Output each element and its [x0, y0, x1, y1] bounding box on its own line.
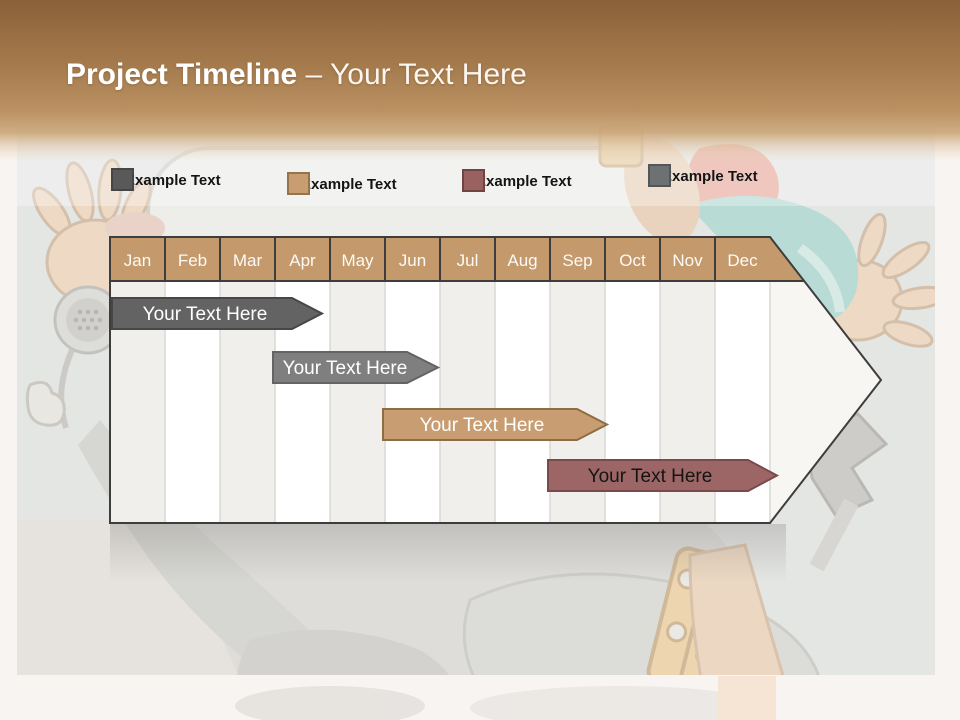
slide-canvas: Project Timeline – Your Text Here Exampl… [0, 0, 960, 720]
month-label-jun[interactable]: Jun [399, 251, 426, 270]
month-label-nov[interactable]: Nov [672, 251, 703, 270]
legend-swatch-3 [462, 169, 485, 192]
legend-swatch-rect [649, 165, 670, 186]
month-label-feb[interactable]: Feb [178, 251, 207, 270]
month-header-row: Jan Feb Mar Apr May Jun Jul Aug Sep Oct … [110, 237, 804, 281]
bar-label-1[interactable]: Your Text Here [143, 304, 268, 325]
legend-swatch-rect [288, 173, 309, 194]
column-stripe-jun [385, 281, 440, 523]
month-label-apr[interactable]: Apr [289, 251, 316, 270]
slide-title[interactable]: Project Timeline – Your Text Here [66, 58, 527, 92]
legend-swatch-1 [111, 168, 134, 191]
legend-swatch-rect [463, 170, 484, 191]
timeline-bar-4[interactable]: Your Text Here [548, 460, 777, 491]
timeline-bar-2[interactable]: Your Text Here [273, 352, 438, 383]
column-stripe-aug [495, 281, 550, 523]
column-stripe-may [330, 281, 385, 523]
legend-swatch-4 [648, 164, 671, 187]
legend-item-4[interactable]: Example Text [648, 164, 758, 188]
month-label-may[interactable]: May [341, 251, 374, 270]
timeline-chart: Jan Feb Mar Apr May Jun Jul Aug Sep Oct … [0, 0, 960, 720]
month-label-jan[interactable]: Jan [124, 251, 151, 270]
bar-label-3[interactable]: Your Text Here [420, 415, 545, 436]
timeline-bar-1[interactable]: Your Text Here [112, 298, 322, 329]
legend-item-1[interactable]: Example Text [111, 168, 221, 192]
legend-swatch-2 [287, 172, 310, 195]
legend-item-3[interactable]: Example Text [462, 169, 572, 193]
month-label-oct[interactable]: Oct [619, 251, 646, 270]
column-stripe-jul [440, 281, 495, 523]
legend-item-label: Example Text [301, 176, 397, 193]
title-primary-text: Project Timeline [66, 58, 297, 91]
month-label-dec[interactable]: Dec [727, 251, 758, 270]
legend-item-label: Example Text [125, 172, 221, 189]
legend-item-label: Example Text [476, 173, 572, 190]
month-label-sep[interactable]: Sep [562, 251, 592, 270]
month-label-jul[interactable]: Jul [457, 251, 479, 270]
bar-label-2[interactable]: Your Text Here [283, 358, 408, 379]
title-secondary-text: – Your Text Here [306, 58, 527, 91]
month-label-mar[interactable]: Mar [233, 251, 263, 270]
legend-item-label: Example Text [662, 168, 758, 185]
bar-label-4[interactable]: Your Text Here [588, 466, 713, 487]
legend-item-2[interactable]: Example Text [287, 172, 397, 196]
month-label-aug[interactable]: Aug [507, 251, 537, 270]
legend-swatch-rect [112, 169, 133, 190]
timeline-bar-3[interactable]: Your Text Here [383, 409, 607, 440]
